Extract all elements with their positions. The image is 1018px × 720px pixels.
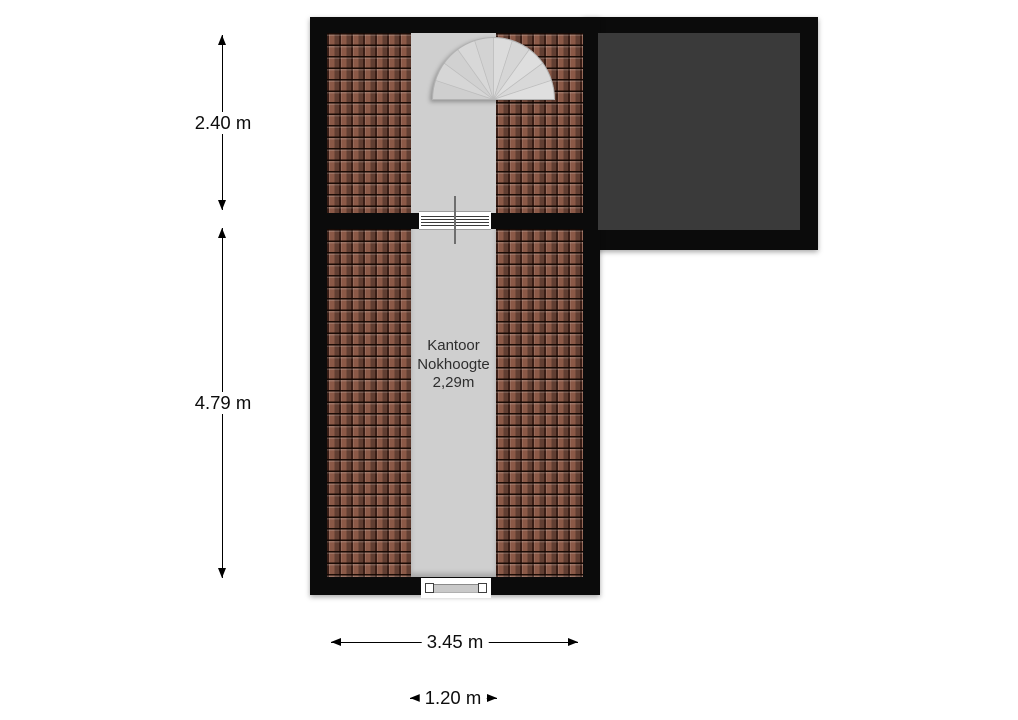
spiral-staircase-icon [432, 36, 555, 101]
roof-tiles-lower-left [327, 229, 411, 577]
dimension-label-corridor-width: 1.20 m [420, 687, 487, 709]
arrow-right-icon [487, 694, 497, 702]
window-jamb-right [478, 583, 487, 593]
flat-roof-area [598, 33, 800, 230]
window-jamb-left [425, 583, 434, 593]
arrow-up-icon [218, 35, 226, 45]
window-glass-bar [431, 584, 481, 593]
roof-tiles-lower-right [496, 229, 583, 577]
arrow-right-icon [568, 638, 578, 646]
dimension-label-lower-depth: 4.79 m [190, 392, 257, 414]
office-floor [411, 229, 496, 577]
section-line [454, 196, 456, 244]
arrow-up-icon [218, 228, 226, 238]
arrow-left-icon [410, 694, 420, 702]
room-name: Kantoor [403, 337, 504, 356]
arrow-left-icon [331, 638, 341, 646]
roof-tiles-upper-left [327, 33, 411, 213]
floorplan-canvas: Kantoor Nokhoogte 2,29m 2.40 m 4.79 m 3.… [0, 0, 1018, 720]
room-label-line3: 2,29m [403, 374, 504, 393]
room-label-line2: Nokhoogte [403, 356, 504, 375]
arrow-down-icon [218, 568, 226, 578]
arrow-down-icon [218, 200, 226, 210]
room-label: Kantoor Nokhoogte 2,29m [403, 337, 504, 393]
dimension-label-width: 3.45 m [422, 631, 489, 653]
dimension-label-upper-depth: 2.40 m [190, 112, 257, 134]
